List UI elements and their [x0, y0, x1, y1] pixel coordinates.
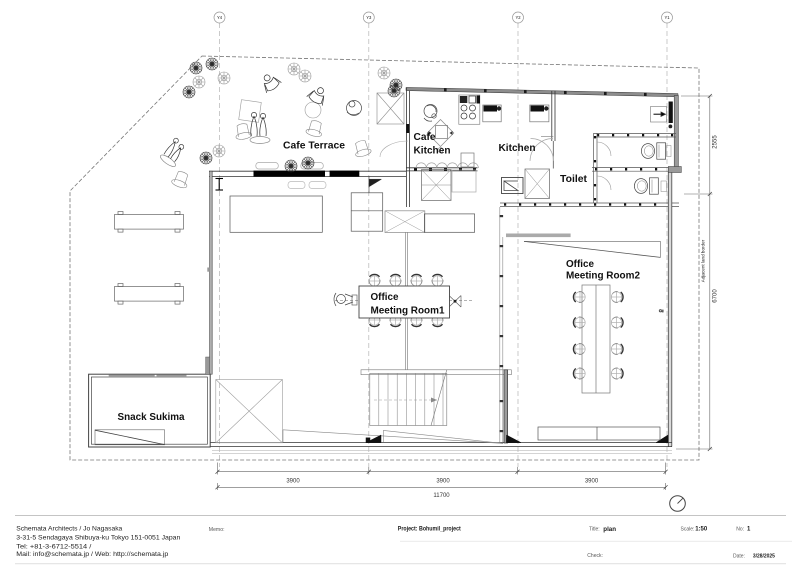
svg-text:plan: plan [603, 526, 616, 533]
svg-text:6700: 6700 [713, 289, 719, 303]
svg-text:Adjacent land border: Adjacent land border [701, 239, 706, 282]
svg-text:11700: 11700 [433, 493, 450, 499]
svg-text:Date:: Date: [733, 553, 745, 559]
svg-text:Office: Office [566, 259, 594, 270]
svg-text:Schemata Architects / Jo Nagas: Schemata Architects / Jo Nagasaka [16, 525, 122, 532]
svg-text:Mail: info@schemata.jp / Web:: Mail: info@schemata.jp / Web: http://sch… [16, 551, 168, 558]
svg-text:Y1: Y1 [664, 15, 670, 20]
svg-text:3900: 3900 [585, 479, 599, 485]
svg-text:Cu: Cu [659, 309, 664, 313]
svg-text:2555: 2555 [713, 135, 719, 149]
svg-text:Memo:: Memo: [209, 527, 225, 533]
svg-text:No:: No: [736, 526, 744, 532]
svg-text:1:50: 1:50 [695, 527, 708, 533]
svg-text:Cafe: Cafe [414, 132, 436, 143]
svg-text:3900: 3900 [436, 479, 450, 485]
svg-text:Kitchen: Kitchen [414, 146, 451, 157]
svg-text:Title:: Title: [589, 526, 600, 532]
svg-text:3900: 3900 [286, 479, 300, 485]
svg-text:3-31-5 Sendagaya Shibuya-ku To: 3-31-5 Sendagaya Shibuya-ku Tokyo 151-00… [16, 534, 180, 541]
svg-text:Snack Sukima: Snack Sukima [118, 412, 185, 423]
svg-text:Kitchen: Kitchen [499, 143, 536, 154]
svg-text:Meeting Room2: Meeting Room2 [566, 271, 640, 282]
svg-text:Check:: Check: [587, 553, 603, 559]
svg-text:Project: Bohumil_project: Project: Bohumil_project [398, 527, 461, 533]
svg-text:3/28/2025: 3/28/2025 [753, 554, 775, 560]
svg-text:Y2: Y2 [515, 15, 521, 20]
svg-text:Tel: +81-3-6712-5514 /: Tel: +81-3-6712-5514 / [16, 544, 91, 551]
svg-text:Scale:: Scale: [681, 526, 695, 532]
svg-text:Y3: Y3 [366, 15, 372, 20]
svg-text:Meeting Room1: Meeting Room1 [371, 306, 445, 317]
svg-text:Office: Office [371, 292, 399, 303]
svg-text:Cafe Terrace: Cafe Terrace [283, 141, 345, 152]
svg-text:Toilet: Toilet [560, 174, 588, 185]
svg-text:Y4: Y4 [217, 15, 223, 20]
